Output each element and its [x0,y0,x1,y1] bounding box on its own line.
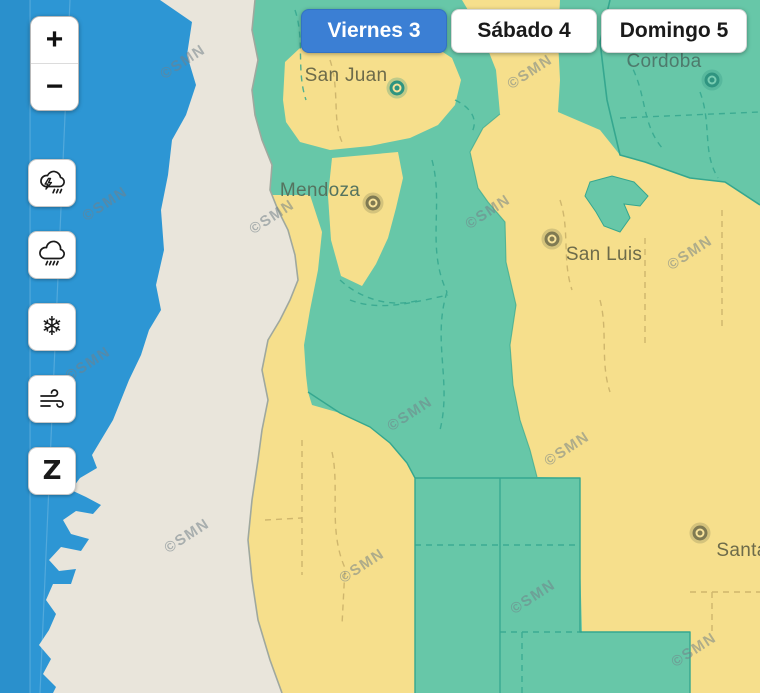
city-marker-dot [710,78,715,83]
city-marker-mendoza[interactable] [366,196,381,211]
tab-sabado-4[interactable]: Sábado 4 [451,9,597,53]
zoom-control: + − [30,16,79,111]
city-label-san-juan: San Juan [305,65,388,87]
city-marker-san-luis[interactable] [545,232,560,247]
city-label-cordoba: Cordoba [627,51,702,73]
wind-filter-button[interactable] [28,375,76,423]
tab-viernes-3[interactable]: Viernes 3 [301,9,447,53]
city-label-mendoza: Mendoza [280,180,360,202]
rain-filter-button[interactable] [28,231,76,279]
weather-alert-map-screen: ©SMN©SMN©SMN©SMN©SMN©SMN©SMN©SMN©SMN©SMN… [0,0,760,693]
tab-domingo-5[interactable]: Domingo 5 [601,9,747,53]
city-marker-dot [698,531,703,536]
rain-cloud-icon [35,238,69,272]
storms-filter-button[interactable] [28,159,76,207]
zonda-z-icon: Z [43,458,62,484]
city-marker-dot [371,201,376,206]
wind-icon [35,382,69,416]
map-tile-edge [0,0,30,693]
city-marker-dot [550,237,555,242]
city-label-santa: Santa [716,540,760,562]
city-marker-dot [395,86,400,91]
snowflake-icon: ❄ [41,314,63,340]
zoom-out-button[interactable]: − [31,64,78,110]
storm-cloud-lightning-icon [35,166,69,200]
map-canvas[interactable] [0,0,760,693]
city-marker-cordoba[interactable] [705,73,720,88]
snow-filter-button[interactable]: ❄ [28,303,76,351]
zoom-in-button[interactable]: + [31,17,78,63]
day-tabs: Viernes 3 Sábado 4 Domingo 5 [301,9,747,53]
city-label-san-luis: San Luis [566,244,642,266]
zonda-filter-button[interactable]: Z [28,447,76,495]
city-marker-santa[interactable] [693,526,708,541]
city-marker-san-juan[interactable] [390,81,405,96]
